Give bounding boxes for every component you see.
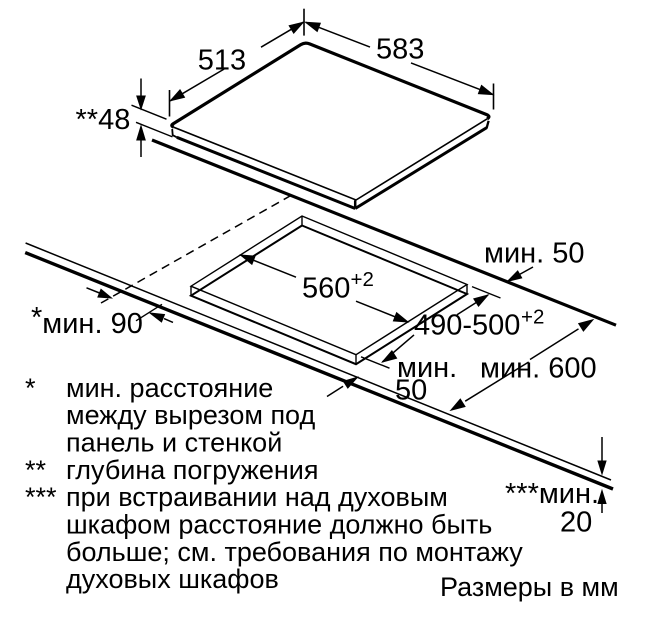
svg-text:50: 50 xyxy=(395,375,427,407)
svg-text:между вырезом под: между вырезом под xyxy=(66,400,315,430)
svg-text:*: * xyxy=(25,373,36,403)
svg-text:+2: +2 xyxy=(521,306,544,329)
svg-text:панель и стенкой: панель и стенкой xyxy=(66,428,282,458)
svg-text:**48: **48 xyxy=(76,104,131,136)
svg-text:583: 583 xyxy=(376,34,424,66)
svg-text:глубина погружения: глубина погружения xyxy=(66,455,318,485)
svg-text:мин. 600: мин. 600 xyxy=(480,353,597,385)
svg-text:*мин. 90: *мин. 90 xyxy=(31,302,143,340)
svg-text:***мин.: ***мин. xyxy=(505,478,599,510)
svg-text:больше; см. требования по монт: больше; см. требования по монтажу xyxy=(66,537,523,567)
svg-text:при встраивании над духовым: при встраивании над духовым xyxy=(66,482,448,512)
svg-text:шкафом расстояние должно быть: шкафом расстояние должно быть xyxy=(66,510,492,540)
svg-text:560: 560 xyxy=(302,273,350,305)
svg-text:духовых шкафов: духовых шкафов xyxy=(66,564,279,594)
svg-text:***: *** xyxy=(25,482,57,512)
svg-text:+2: +2 xyxy=(351,268,374,291)
svg-text:мин. 50: мин. 50 xyxy=(484,238,585,270)
svg-text:Размеры в мм: Размеры в мм xyxy=(440,572,619,602)
svg-text:490-500: 490-500 xyxy=(414,310,520,342)
svg-text:20: 20 xyxy=(560,507,592,539)
svg-text:513: 513 xyxy=(198,45,246,77)
svg-text:**: ** xyxy=(25,455,47,485)
svg-text:мин. расстояние: мин. расстояние xyxy=(66,373,273,403)
